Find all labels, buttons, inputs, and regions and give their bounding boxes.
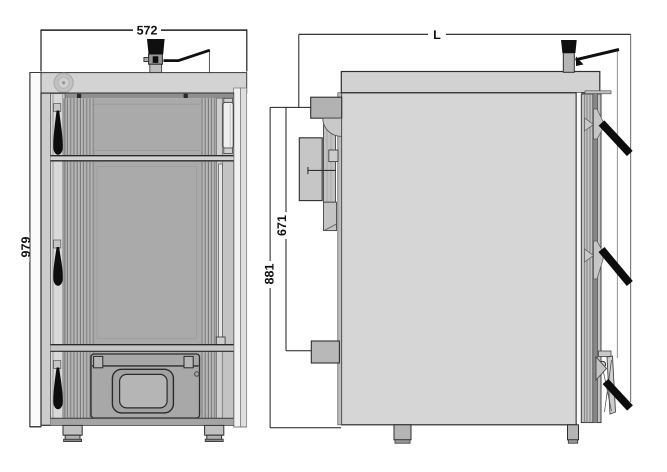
svg-text:881: 881 [263, 264, 277, 285]
svg-text:L: L [433, 28, 441, 42]
svg-text:671: 671 [275, 215, 289, 236]
svg-text:572: 572 [137, 24, 158, 38]
